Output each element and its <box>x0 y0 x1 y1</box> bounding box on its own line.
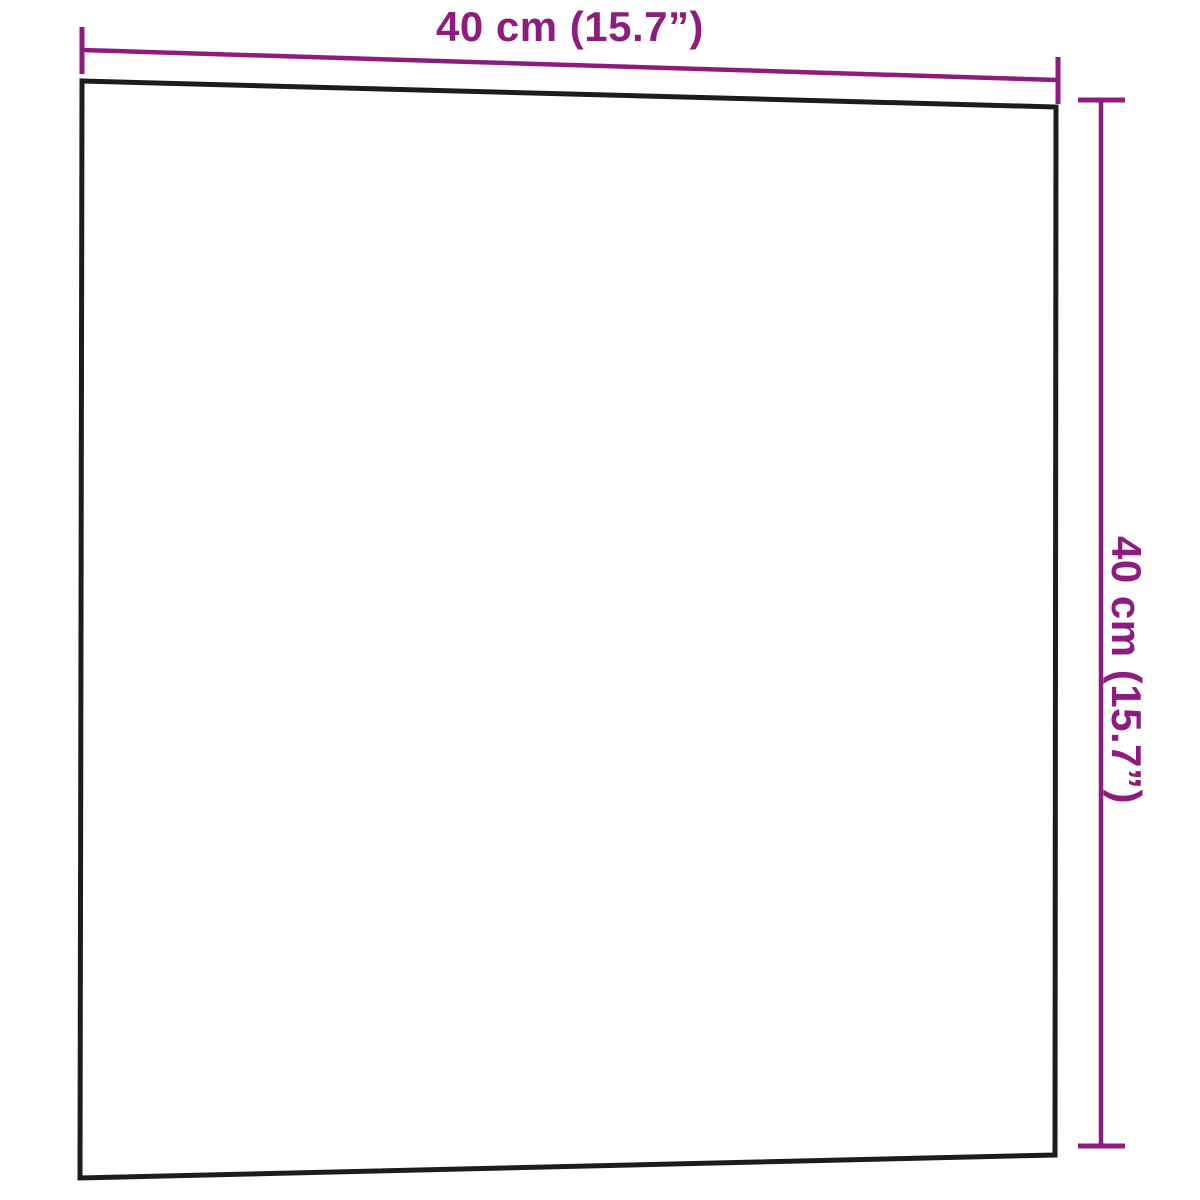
dimension-diagram: 40 cm (15.7”) 40 cm (15.7”) <box>0 0 1200 1200</box>
board-outline-shape <box>80 81 1056 1178</box>
width-dimension-label: 40 cm (15.7”) <box>82 4 1058 50</box>
diagram-artwork <box>0 0 1200 1200</box>
height-dimension-label: 40 cm (15.7”) <box>1103 536 1149 804</box>
